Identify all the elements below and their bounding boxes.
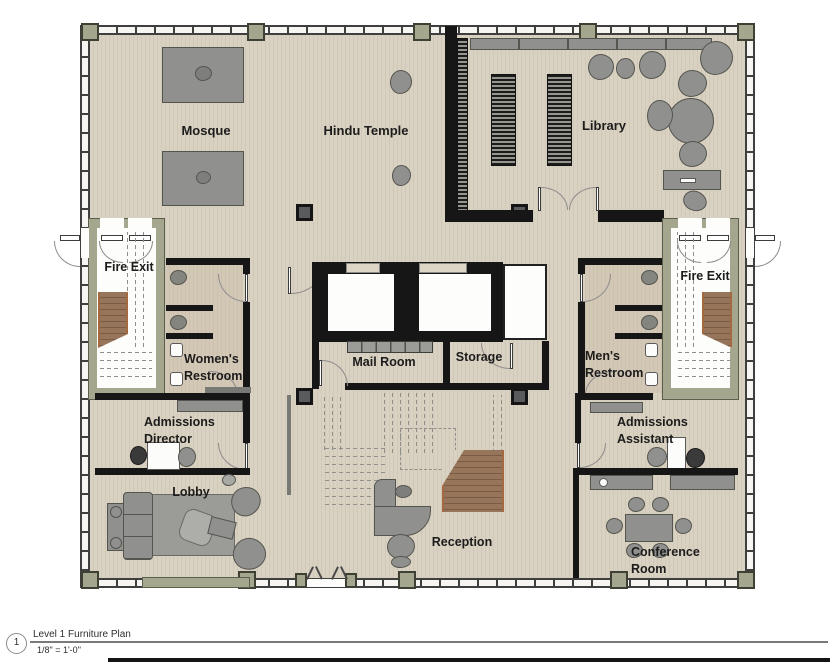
stair-treads-dashed: [100, 352, 152, 384]
door-opening: [128, 218, 152, 228]
elevator-cab: [328, 274, 394, 331]
room-label-conference-room: Conference Room: [631, 544, 700, 577]
room-label-library: Library: [582, 117, 626, 134]
counter: [670, 475, 735, 490]
conference-wall: [573, 475, 579, 578]
library-wall-bottom-b: [598, 210, 664, 222]
entry-jamb: [295, 573, 307, 588]
stair-above-dashed: [324, 396, 342, 450]
side-table: [616, 58, 635, 79]
lamp-icon: [110, 506, 122, 518]
stair-treads-dashed: [127, 232, 151, 347]
stall-partition: [615, 333, 662, 339]
storage-wall: [443, 383, 549, 390]
exterior-wall-right: [745, 25, 755, 588]
room-label-hindu-temple: Hindu Temple: [324, 122, 409, 139]
storage-door-leaf: [510, 343, 513, 369]
column: [610, 571, 628, 589]
interior-column: [511, 388, 528, 405]
stall-partition: [166, 305, 213, 311]
door-swing-arc: [755, 241, 781, 267]
restroom-wall: [243, 258, 250, 274]
entry-jamb: [345, 573, 357, 588]
mailboxes: [347, 341, 433, 353]
stair-treads-dashed: [677, 232, 701, 347]
restroom-wall: [578, 302, 585, 395]
stair-above-dashed: [493, 395, 507, 453]
desk-item: [680, 178, 696, 183]
interior-column: [296, 388, 313, 405]
exterior-door-opening: [81, 228, 89, 258]
library-wall-bottom-a: [445, 210, 533, 222]
exterior-door-opening: [746, 228, 754, 258]
restroom-wall: [243, 302, 250, 395]
mailroom-wall: [312, 341, 319, 389]
drawing-scale: 1/8" = 1'-0": [37, 645, 81, 655]
office-wall: [243, 393, 250, 443]
door-opening: [706, 218, 730, 228]
stall-partition: [615, 305, 662, 311]
floor-plan-sheet: Mosque Hindu Temple Library Fire Exit Fi…: [0, 0, 830, 662]
mailroom-wall: [345, 383, 447, 390]
column: [737, 23, 755, 41]
drawing-title: Level 1 Furniture Plan: [33, 629, 131, 640]
room-label-fire-exit-right: Fire Exit: [680, 268, 729, 285]
restroom-wall: [578, 258, 585, 274]
shaft-room: [503, 264, 547, 340]
room-label-fire-exit-left: Fire Exit: [104, 259, 153, 276]
elevator-door: [346, 263, 380, 273]
library-credenza: [470, 38, 712, 50]
room-label-lobby: Lobby: [172, 484, 210, 501]
elevator-cab: [419, 274, 491, 331]
entry-opening: [307, 579, 345, 587]
restroom-wall: [578, 258, 662, 265]
credenza: [590, 402, 643, 413]
sofa: [123, 492, 153, 560]
reading-table: [668, 98, 714, 144]
room-label-mens-restroom: Men's Restroom: [585, 348, 643, 381]
sink-icon: [170, 372, 183, 386]
storage-wall: [542, 341, 549, 390]
office-wall: [95, 393, 250, 400]
interior-column: [296, 204, 313, 221]
room-label-mosque: Mosque: [181, 122, 230, 139]
restroom-wall: [166, 258, 250, 265]
door-opening: [678, 218, 702, 228]
title-underline: [30, 641, 828, 643]
room-label-admissions-assistant: Admissions Assistant: [617, 414, 688, 447]
column: [81, 571, 99, 589]
room-label-mail-room: Mail Room: [352, 354, 415, 371]
column: [81, 23, 99, 41]
stair-treads-dashed: [678, 352, 730, 384]
room-label-reception: Reception: [432, 534, 492, 551]
sink-icon: [170, 343, 183, 357]
room-label-storage: Storage: [456, 349, 503, 366]
door-opening: [100, 218, 124, 228]
planter-wall: [142, 577, 250, 588]
sink-icon: [645, 372, 658, 386]
conference-table: [625, 514, 673, 542]
elevator-door: [419, 263, 467, 273]
wall-bookshelf: [457, 38, 468, 212]
column: [247, 23, 265, 41]
sink-icon: [599, 478, 608, 487]
stair-guard: [287, 395, 291, 495]
sink-icon: [645, 343, 658, 357]
lamp-icon: [110, 537, 122, 549]
column: [413, 23, 431, 41]
column: [737, 571, 755, 589]
room-label-womens-restroom: Women's Restroom: [184, 351, 242, 384]
bookshelf-unit: [547, 74, 572, 166]
room-label-admissions-director: Admissions Director: [144, 414, 215, 447]
office-wall: [575, 393, 581, 443]
sheet-edge-line: [108, 658, 830, 662]
detail-number-bubble: 1: [6, 633, 27, 654]
column: [398, 571, 416, 589]
office-wall: [575, 393, 653, 400]
credenza: [177, 400, 243, 412]
library-wall-left: [445, 26, 457, 222]
library-door-leaf: [596, 187, 599, 211]
bookshelf-unit: [491, 74, 516, 166]
conference-wall: [573, 468, 738, 475]
stall-partition: [166, 333, 213, 339]
door-swing-arc: [54, 241, 80, 267]
